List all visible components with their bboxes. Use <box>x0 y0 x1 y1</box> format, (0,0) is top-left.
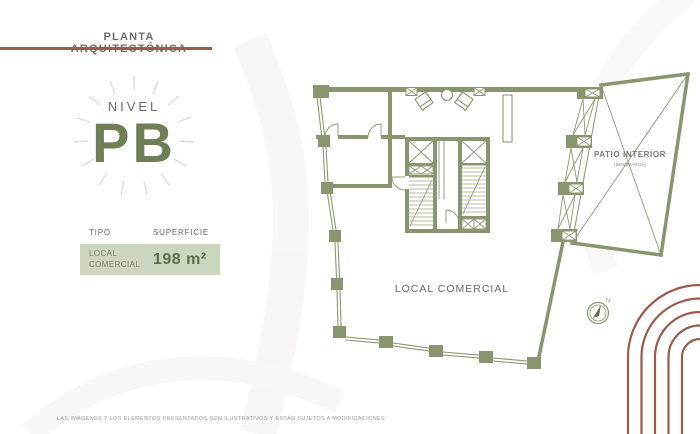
level-badge: NIVEL PB <box>54 99 214 171</box>
round-table-icon <box>442 90 453 101</box>
floorplan-canvas: LOCAL COMERCIAL PATIO INTERIOR (DINAMARC… <box>0 0 700 434</box>
patio-interior-label: PATIO INTERIOR <box>594 150 666 159</box>
col-header-superficie: SUPERFICIE <box>153 228 209 237</box>
cell-superficie: 198 m² <box>153 251 207 269</box>
header-accent-rule <box>0 47 212 50</box>
cell-tipo: LOCAL COMERCIAL <box>80 249 153 271</box>
compass-icon: N <box>588 298 611 324</box>
floorplan: LOCAL COMERCIAL PATIO INTERIOR (DINAMARC… <box>313 74 688 371</box>
compass-n-label: N <box>606 298 610 304</box>
patio-sub-label: (DINAMARCA) <box>614 162 646 168</box>
table-row: LOCAL COMERCIAL 198 m² <box>80 244 220 275</box>
core <box>392 137 490 233</box>
summary-table-header: TIPO SUPERFICIE <box>80 228 220 237</box>
disclaimer-text: LAS IMÁGENES Y LOS ELEMENTOS PRESENTADOS… <box>57 416 385 422</box>
level-code: PB <box>54 115 214 171</box>
service-boxes <box>462 219 486 229</box>
presentation-slide: LOCAL COMERCIAL PATIO INTERIOR (DINAMARC… <box>0 0 700 434</box>
local-comercial-label: LOCAL COMERCIAL <box>395 283 509 295</box>
col-header-tipo: TIPO <box>80 228 153 237</box>
corner-arches-decoration <box>628 285 700 434</box>
bench-icon <box>503 95 512 142</box>
page-title: PLANTA ARQUITECTÓNICA <box>44 31 214 55</box>
summary-table: TIPO SUPERFICIE LOCAL COMERCIAL 198 m² <box>80 228 220 275</box>
